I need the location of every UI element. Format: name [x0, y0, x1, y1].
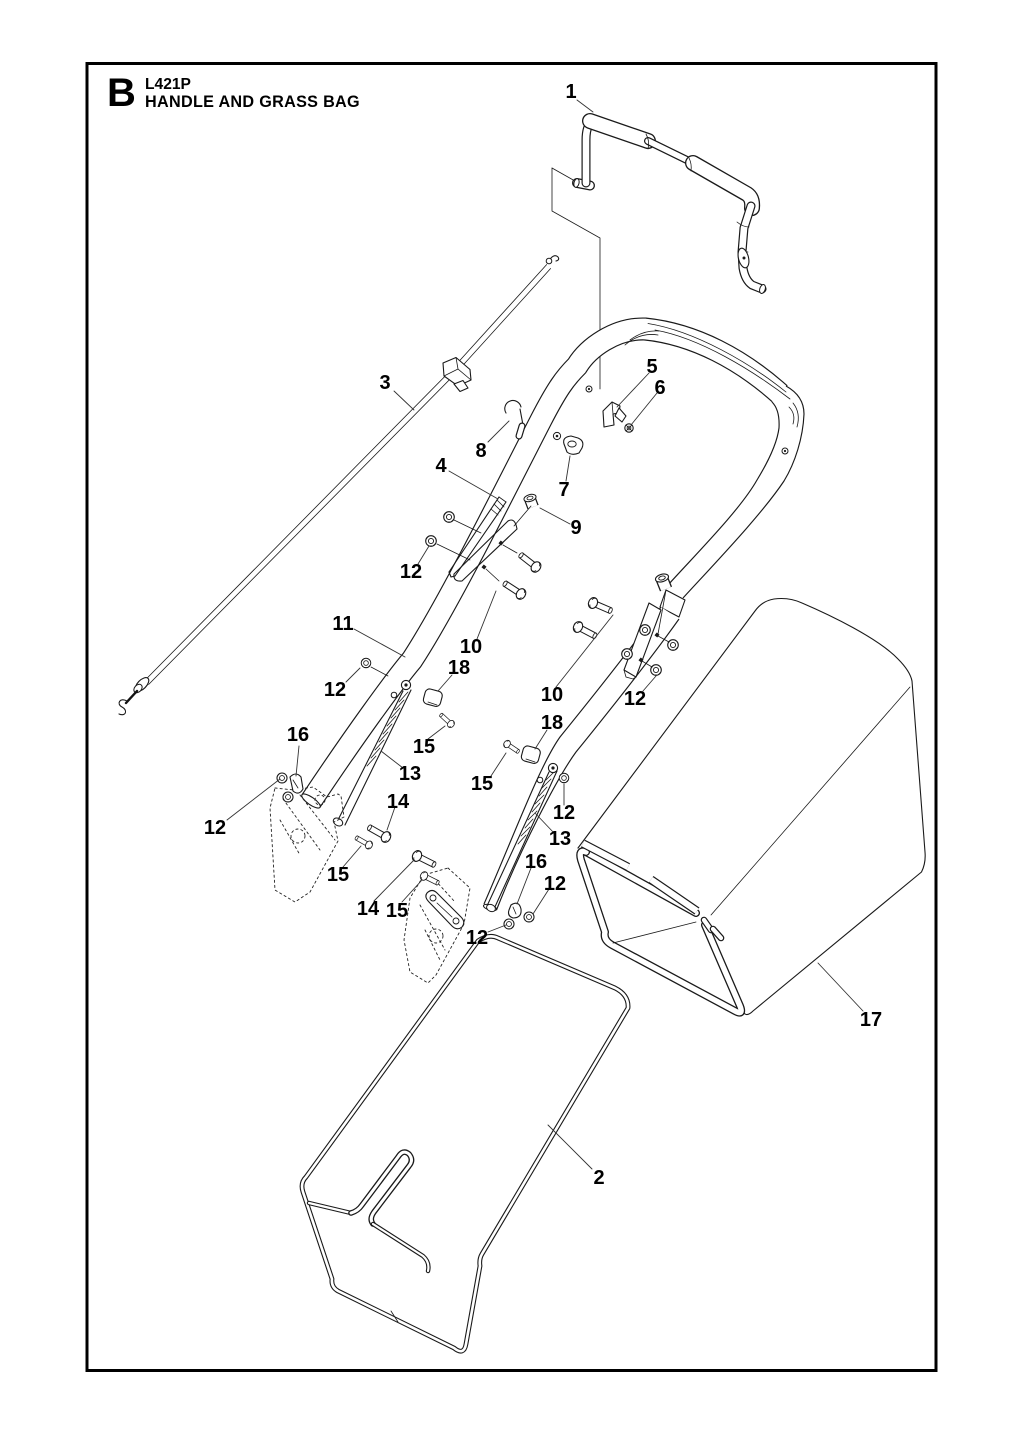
svg-text:15: 15 [471, 773, 493, 795]
svg-text:12: 12 [624, 688, 646, 710]
svg-text:18: 18 [541, 712, 563, 734]
svg-text:9: 9 [570, 517, 581, 539]
svg-text:3: 3 [379, 372, 390, 394]
svg-text:1: 1 [565, 81, 576, 103]
svg-text:12: 12 [553, 802, 575, 824]
svg-text:14: 14 [357, 898, 380, 920]
svg-text:15: 15 [413, 736, 435, 758]
svg-text:15: 15 [386, 900, 408, 922]
svg-text:HANDLE AND GRASS BAG: HANDLE AND GRASS BAG [145, 93, 360, 111]
svg-text:14: 14 [387, 791, 410, 813]
svg-text:15: 15 [327, 864, 349, 886]
svg-text:B: B [107, 71, 136, 115]
svg-text:7: 7 [558, 479, 569, 501]
svg-text:17: 17 [860, 1009, 882, 1031]
svg-text:13: 13 [399, 763, 421, 785]
svg-text:6: 6 [654, 377, 665, 399]
svg-text:10: 10 [541, 684, 563, 706]
svg-text:16: 16 [287, 724, 309, 746]
svg-text:13: 13 [549, 828, 571, 850]
svg-text:12: 12 [324, 679, 346, 701]
svg-text:4: 4 [435, 455, 447, 477]
svg-text:8: 8 [475, 440, 486, 462]
svg-text:5: 5 [646, 356, 657, 378]
svg-text:2: 2 [593, 1167, 604, 1189]
svg-text:10: 10 [460, 636, 482, 658]
svg-text:16: 16 [525, 851, 547, 873]
svg-text:12: 12 [400, 561, 422, 583]
svg-text:12: 12 [204, 817, 226, 839]
svg-text:L421P: L421P [145, 76, 191, 93]
svg-text:11: 11 [332, 613, 353, 635]
svg-text:12: 12 [466, 927, 488, 949]
svg-text:12: 12 [544, 873, 566, 895]
svg-text:18: 18 [448, 657, 470, 679]
